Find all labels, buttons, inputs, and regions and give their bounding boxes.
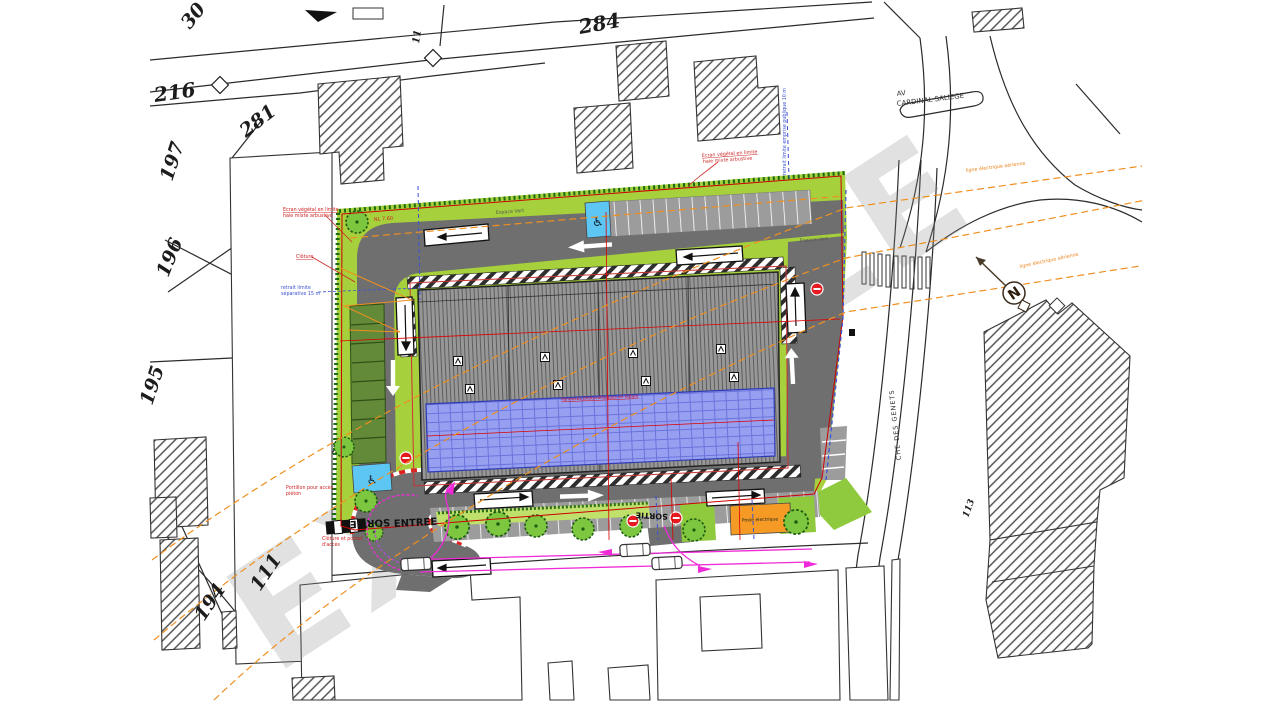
entree-label: ENTREE bbox=[394, 517, 438, 530]
svg-text:séparative 15 m: séparative 15 m bbox=[281, 290, 321, 297]
svg-text:Clôture: Clôture bbox=[296, 253, 313, 260]
hatched-building bbox=[616, 41, 669, 101]
hatched-building bbox=[222, 611, 237, 649]
svg-text:d'accès: d'accès bbox=[322, 541, 341, 548]
sortie-label: SORTIE bbox=[349, 516, 390, 529]
parcel-label: 195 bbox=[136, 363, 169, 408]
parcel-label: 197 bbox=[156, 139, 189, 184]
survey-marker bbox=[212, 77, 229, 94]
parcel-label: 30 bbox=[177, 0, 211, 33]
svg-text:Clôture et portail: Clôture et portail bbox=[322, 535, 363, 542]
hatched-building-right-lower bbox=[986, 522, 1097, 658]
svg-text:retrait limite: retrait limite bbox=[281, 285, 311, 291]
svg-text:Ecran végétal en limite: Ecran végétal en limite bbox=[283, 206, 339, 213]
hatched-building-right bbox=[984, 300, 1130, 540]
parcel-label: 113 bbox=[961, 498, 977, 519]
svg-text:Portillon pour accès: Portillon pour accès bbox=[286, 484, 334, 491]
grass-parking-left bbox=[350, 304, 386, 464]
hatched-building bbox=[160, 538, 200, 650]
avenue-label-1: AV bbox=[896, 89, 906, 98]
hatched-building bbox=[972, 8, 1024, 32]
hatched-building bbox=[694, 56, 780, 141]
wheelchair-icon: ♿ bbox=[367, 473, 378, 487]
parcel-label: 11 bbox=[411, 29, 424, 44]
sortie-label-right: SORTIE bbox=[635, 510, 668, 521]
parcel-label: 281 bbox=[235, 100, 281, 142]
main-building: Panneaux photovoltaïques en toiture bbox=[410, 266, 788, 486]
svg-text:piéton: piéton bbox=[286, 490, 301, 497]
parcel-label: 284 bbox=[576, 8, 622, 39]
parcel-label: 196 bbox=[152, 235, 187, 280]
svg-text:haie mixte arbustive: haie mixte arbustive bbox=[283, 213, 333, 219]
svg-text:ligne électrique aérienne: ligne électrique aérienne bbox=[965, 160, 1025, 174]
hatched-building bbox=[150, 497, 177, 538]
avenue-label-2: CARDINAL SALIEGE bbox=[896, 92, 964, 108]
chemin-label: CHE DES GENETS bbox=[888, 389, 903, 461]
site-plan-canvas: EXEMPLE ♿ ♿ bbox=[0, 0, 1280, 720]
parking-stalls-right bbox=[820, 426, 847, 480]
no-entry-sign bbox=[811, 283, 823, 295]
car bbox=[652, 556, 683, 570]
survey-marker bbox=[425, 50, 442, 67]
hatched-building bbox=[574, 103, 633, 173]
car bbox=[620, 543, 651, 557]
no-entry-sign bbox=[400, 452, 412, 464]
svg-text:ligne électrique aérienne: ligne électrique aérienne bbox=[1019, 251, 1079, 270]
car bbox=[401, 557, 432, 571]
svg-text:retrait limite emprise publiqu: retrait limite emprise publique 10 m bbox=[782, 88, 788, 175]
